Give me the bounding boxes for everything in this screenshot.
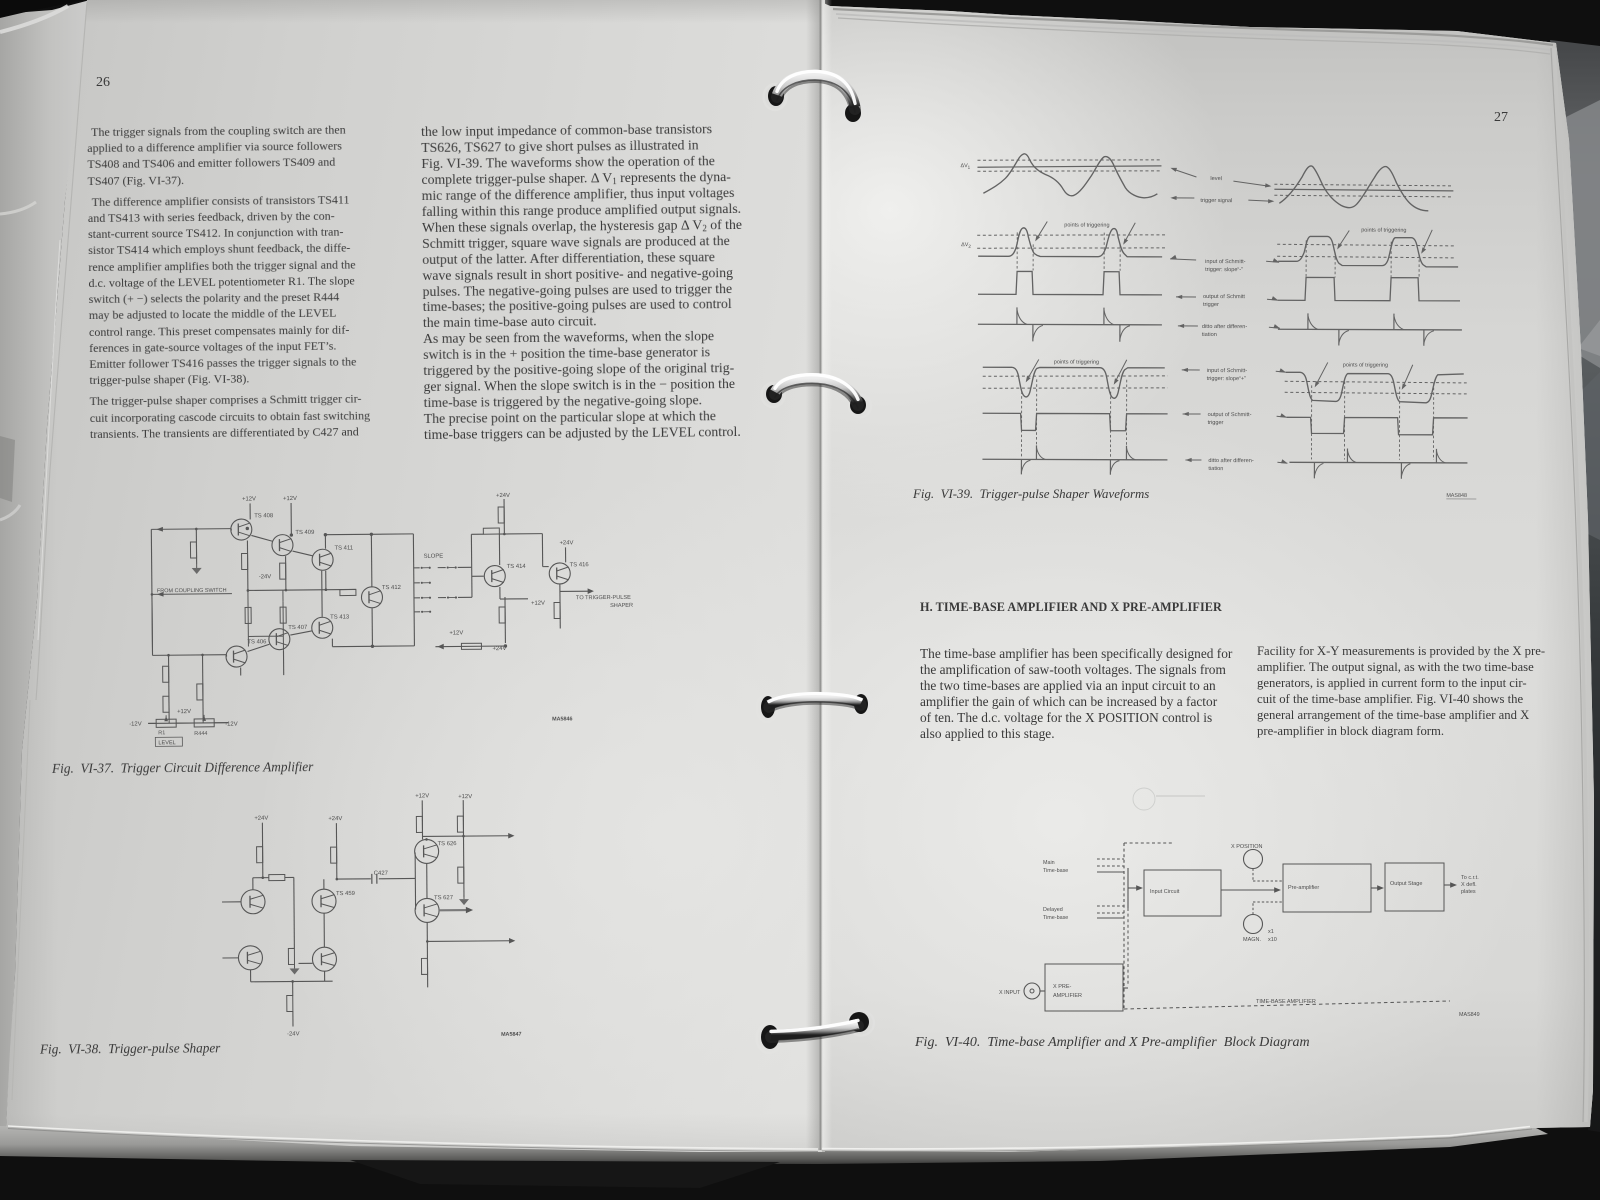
svg-text:TS 416: TS 416 xyxy=(570,562,590,568)
svg-text:TO TRIGGER-PULSE: TO TRIGGER-PULSE xyxy=(576,595,631,602)
svg-text:TS 412: TS 412 xyxy=(382,585,401,591)
svg-text:+12V: +12V xyxy=(242,496,256,502)
svg-text:-24V: -24V xyxy=(287,1031,300,1037)
svg-text:Time-base: Time-base xyxy=(1043,915,1068,921)
svg-text:AMPLIFIER: AMPLIFIER xyxy=(1053,993,1082,999)
svg-text:TS 413: TS 413 xyxy=(330,614,350,620)
svg-text:tiation: tiation xyxy=(1202,332,1217,338)
svg-text:trigger: trigger xyxy=(1208,420,1224,426)
svg-text:MAGN.: MAGN. xyxy=(1243,937,1262,943)
svg-text:+12V: +12V xyxy=(177,709,191,715)
svg-text:output of Schmitt-: output of Schmitt- xyxy=(1208,412,1252,418)
svg-text:plates: plates xyxy=(1461,889,1476,895)
svg-text:level: level xyxy=(1210,176,1222,182)
svg-text:points of triggering: points of triggering xyxy=(1064,223,1109,229)
svg-text:ΔV2: ΔV2 xyxy=(961,242,971,249)
svg-text:SLOPE: SLOPE xyxy=(424,554,444,560)
svg-text:MA5847: MA5847 xyxy=(501,1032,521,1038)
svg-text:TS 459: TS 459 xyxy=(336,891,355,897)
svg-text:X INPUT: X INPUT xyxy=(999,990,1021,996)
svg-text:+24V: +24V xyxy=(254,816,268,822)
svg-text:-12V: -12V xyxy=(129,721,142,727)
svg-text:points of triggering: points of triggering xyxy=(1054,359,1099,365)
svg-text:C427: C427 xyxy=(374,871,388,877)
svg-text:+12V: +12V xyxy=(415,793,429,799)
svg-text:X PRE-: X PRE- xyxy=(1053,984,1072,990)
svg-text:TS 406: TS 406 xyxy=(247,639,267,645)
svg-text:+24V: +24V xyxy=(328,816,342,822)
svg-text:R444: R444 xyxy=(194,731,207,737)
svg-text:Input Circuit: Input Circuit xyxy=(1150,889,1180,895)
svg-text:Output Stage: Output Stage xyxy=(1390,881,1422,887)
svg-text:Main: Main xyxy=(1043,860,1055,866)
svg-text:+12V: +12V xyxy=(449,630,463,636)
svg-text:x10: x10 xyxy=(1268,937,1277,943)
svg-text:ditto after differen-: ditto after differen- xyxy=(1208,458,1253,464)
svg-text:points of triggering: points of triggering xyxy=(1361,228,1406,234)
svg-text:To c.r.t.: To c.r.t. xyxy=(1461,875,1479,881)
svg-text:SHAPER: SHAPER xyxy=(610,603,633,609)
svg-text:LEVEL: LEVEL xyxy=(158,740,175,746)
svg-text:TS 411: TS 411 xyxy=(334,545,353,551)
svg-text:x1: x1 xyxy=(1268,929,1274,935)
svg-text:+24V: +24V xyxy=(496,493,510,499)
svg-text:input of Schmitt-: input of Schmitt- xyxy=(1207,368,1248,374)
svg-text:ΔV1: ΔV1 xyxy=(960,163,970,170)
svg-text:output of Schmitt: output of Schmitt xyxy=(1203,294,1245,300)
svg-text:MAS848: MAS848 xyxy=(1446,493,1467,499)
svg-text:trigger: slope“-”: trigger: slope“-” xyxy=(1205,267,1243,273)
svg-text:X defl.: X defl. xyxy=(1461,882,1477,888)
svg-text:tiation: tiation xyxy=(1208,466,1223,472)
svg-text:TS 627: TS 627 xyxy=(434,895,453,901)
svg-text:Pre-amplifier: Pre-amplifier xyxy=(1288,885,1319,891)
svg-text:trigger: slope“+”: trigger: slope“+” xyxy=(1207,376,1246,382)
svg-text:TS 414: TS 414 xyxy=(507,564,527,570)
svg-text:TS 626: TS 626 xyxy=(438,841,458,847)
svg-text:trigger signal: trigger signal xyxy=(1200,198,1232,204)
svg-text:MA5846: MA5846 xyxy=(552,716,572,722)
svg-text:input of Schmitt-: input of Schmitt- xyxy=(1205,259,1246,265)
svg-text:-24V: -24V xyxy=(259,574,272,580)
svg-text:TS 409: TS 409 xyxy=(295,530,314,536)
svg-text:trigger: trigger xyxy=(1203,302,1219,308)
svg-text:TS 407: TS 407 xyxy=(288,625,307,631)
svg-text:+12V: +12V xyxy=(458,794,472,800)
svg-text:Time-base: Time-base xyxy=(1043,868,1068,874)
svg-text:TS 408: TS 408 xyxy=(254,513,274,519)
svg-text:Delayed: Delayed xyxy=(1043,907,1063,913)
svg-text:+12V: +12V xyxy=(531,601,545,607)
svg-text:+24V: +24V xyxy=(559,540,573,546)
svg-text:+12V: +12V xyxy=(283,496,297,502)
svg-text:R1: R1 xyxy=(158,730,165,736)
svg-text:points of triggering: points of triggering xyxy=(1343,362,1388,368)
svg-text:X POSITION: X POSITION xyxy=(1231,844,1263,850)
svg-text:MAS849: MAS849 xyxy=(1459,1012,1480,1018)
svg-text:ditto after differen-: ditto after differen- xyxy=(1202,324,1247,330)
